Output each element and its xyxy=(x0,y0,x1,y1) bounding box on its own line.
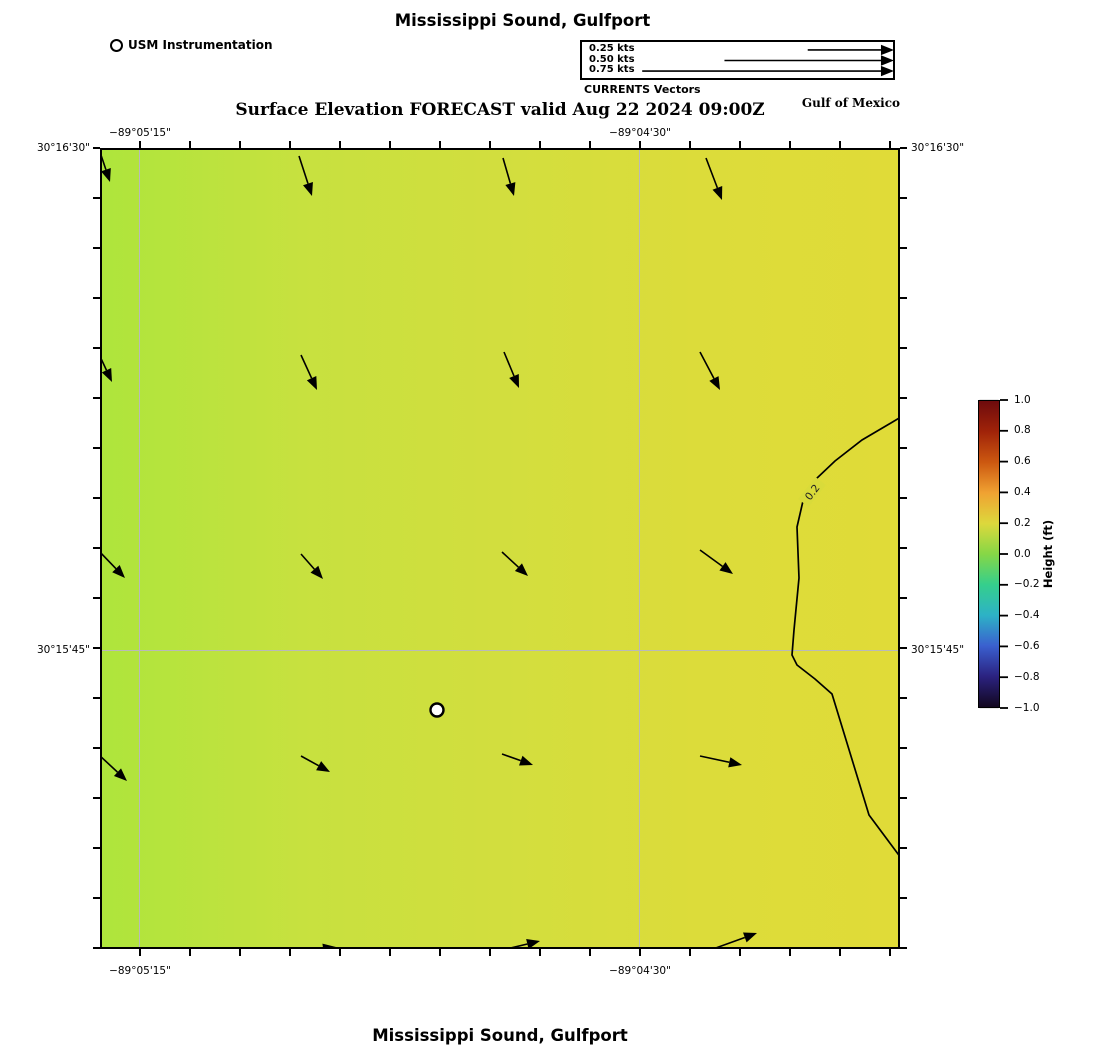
current-arrow xyxy=(502,552,528,576)
colorbar-tick-label: −0.6 xyxy=(1014,640,1054,653)
colorbar-tick-label: −0.4 xyxy=(1014,609,1054,622)
current-arrow xyxy=(299,156,313,196)
region-label: Gulf of Mexico xyxy=(600,96,900,110)
current-arrow xyxy=(498,938,540,948)
station-marker xyxy=(430,703,443,716)
contour-line xyxy=(792,417,900,858)
colorbar-tick-label: −1.0 xyxy=(1014,702,1054,715)
y-axis-tick-label: 30°16'30" xyxy=(0,142,90,154)
colorbar-tick-label: 0.2 xyxy=(1014,517,1054,530)
current-arrow xyxy=(502,754,533,766)
colorbar-gradient xyxy=(978,400,1000,708)
footer-title: Mississippi Sound, Gulfport xyxy=(0,1026,1000,1045)
x-axis-tick-label: −89°04'30" xyxy=(580,965,700,977)
current-arrow xyxy=(503,158,515,196)
y-axis-tick-label: 30°16'30" xyxy=(911,142,1011,154)
colorbar-tick-label: 0.6 xyxy=(1014,455,1054,468)
current-arrow xyxy=(292,943,336,948)
current-arrow xyxy=(100,754,127,781)
current-arrow xyxy=(702,932,757,948)
station-marker-icon xyxy=(110,39,123,52)
colorbar-tick-label: −0.2 xyxy=(1014,578,1054,591)
colorbar-tick-label: −0.8 xyxy=(1014,671,1054,684)
current-arrow xyxy=(700,756,742,767)
vector-scale-legend: 0.25 kts 0.50 kts 0.75 kts xyxy=(580,40,895,80)
x-axis-tick-label: −89°05'15" xyxy=(80,965,200,977)
colorbar-tick-label: 0.0 xyxy=(1014,548,1054,561)
colorbar-tick-label: 1.0 xyxy=(1014,394,1054,407)
vector-scale-arrows xyxy=(582,42,893,78)
current-arrow xyxy=(301,756,330,772)
current-arrow xyxy=(706,158,722,200)
figure-canvas: Mississippi Sound, Gulfport USM Instrume… xyxy=(0,0,1100,1050)
current-arrow xyxy=(504,352,519,388)
scale-arrow xyxy=(642,66,893,76)
y-axis-tick-label: 30°15'45" xyxy=(0,644,90,656)
current-arrow xyxy=(301,554,323,579)
scale-arrow xyxy=(808,45,893,55)
current-arrow xyxy=(700,550,733,574)
colorbar-tick-label: 0.4 xyxy=(1014,486,1054,499)
station-legend-label: USM Instrumentation xyxy=(128,38,273,52)
map-plot: 0.2 xyxy=(100,148,900,949)
x-axis-tick-label: −89°04'30" xyxy=(580,127,700,139)
map-title: Mississippi Sound, Gulfport xyxy=(100,11,945,30)
current-arrow xyxy=(700,352,720,390)
colorbar-tick-label: 0.8 xyxy=(1014,424,1054,437)
current-arrow xyxy=(100,350,112,382)
current-arrow xyxy=(301,355,317,390)
map-overlay: 0.2 xyxy=(100,148,900,949)
current-arrow xyxy=(100,549,125,578)
x-axis-tick-label: −89°05'15" xyxy=(80,127,200,139)
currents-caption: CURRENTS Vectors xyxy=(584,83,701,96)
current-arrow xyxy=(100,152,110,182)
station-legend: USM Instrumentation xyxy=(110,37,273,53)
scale-arrow xyxy=(724,55,893,65)
